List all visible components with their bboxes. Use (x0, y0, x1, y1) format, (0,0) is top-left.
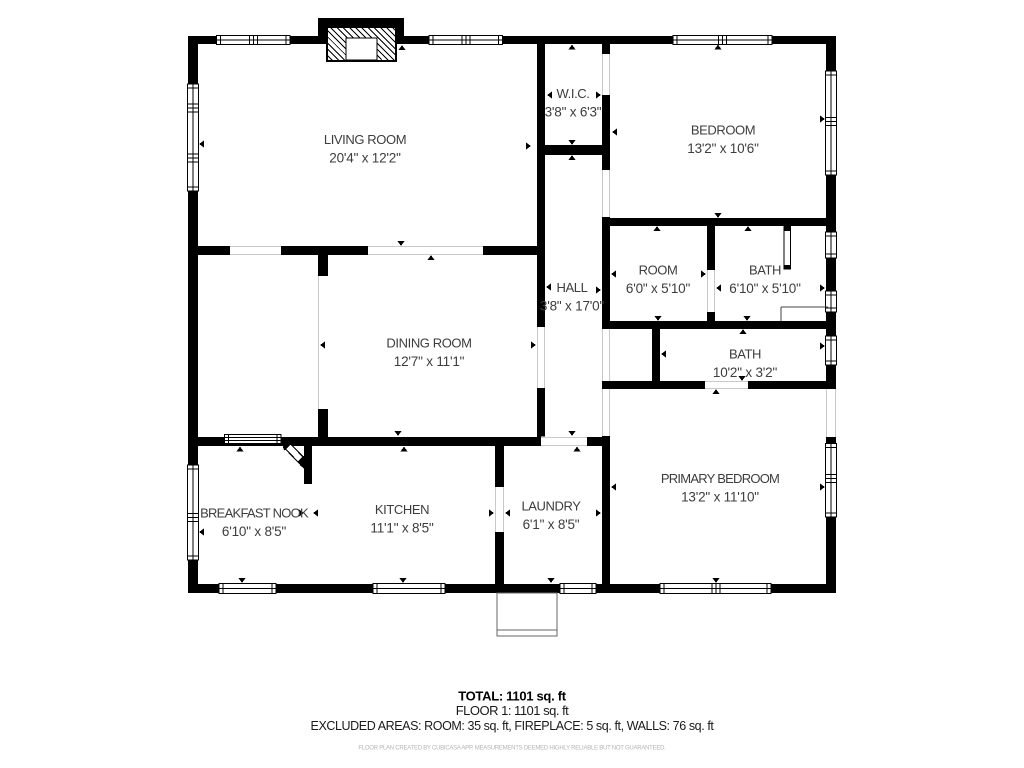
svg-text:12'7" x 11'1": 12'7" x 11'1" (394, 354, 465, 369)
svg-text:DINING ROOM: DINING ROOM (386, 336, 471, 351)
svg-text:20'4" x 12'2": 20'4" x 12'2" (329, 150, 401, 165)
svg-text:6'0" x 5'10": 6'0" x 5'10" (626, 281, 691, 296)
svg-text:BEDROOM: BEDROOM (691, 123, 755, 138)
svg-text:6'10" x 8'5": 6'10" x 8'5" (222, 524, 287, 539)
svg-text:3'8" x 6'3": 3'8" x 6'3" (545, 104, 602, 119)
svg-text:3'8" x 17'0": 3'8" x 17'0" (540, 298, 605, 313)
svg-text:6'10" x 5'10": 6'10" x 5'10" (729, 281, 801, 296)
svg-text:BATH: BATH (729, 347, 761, 362)
svg-text:PRIMARY BEDROOM: PRIMARY BEDROOM (661, 471, 779, 486)
svg-text:LIVING ROOM: LIVING ROOM (324, 132, 406, 147)
svg-text:BATH: BATH (749, 263, 781, 278)
svg-text:EXCLUDED AREAS: ROOM: 35 sq. f: EXCLUDED AREAS: ROOM: 35 sq. ft, FIREPLA… (311, 719, 715, 733)
svg-text:KITCHEN: KITCHEN (375, 502, 429, 517)
svg-text:FLOOR PLAN CREATED BY CUBICASA: FLOOR PLAN CREATED BY CUBICASA APP. MEAS… (358, 746, 666, 752)
svg-text:13'2" x 10'6": 13'2" x 10'6" (687, 141, 759, 156)
svg-text:10'2" x 3'2": 10'2" x 3'2" (713, 365, 778, 380)
svg-text:11'1" x 8'5": 11'1" x 8'5" (370, 520, 434, 535)
svg-text:BREAKFAST NOOK: BREAKFAST NOOK (200, 506, 309, 521)
svg-text:13'2" x 11'10": 13'2" x 11'10" (681, 489, 759, 504)
svg-text:LAUNDRY: LAUNDRY (521, 499, 581, 514)
svg-text:FLOOR 1: 1101 sq. ft: FLOOR 1: 1101 sq. ft (456, 703, 569, 718)
svg-text:W.I.C.: W.I.C. (557, 86, 590, 101)
svg-text:6'1" x 8'5": 6'1" x 8'5" (523, 517, 580, 532)
svg-text:ROOM: ROOM (639, 263, 678, 278)
svg-text:HALL: HALL (557, 280, 588, 295)
svg-text:TOTAL: 1101 sq. ft: TOTAL: 1101 sq. ft (458, 688, 567, 703)
